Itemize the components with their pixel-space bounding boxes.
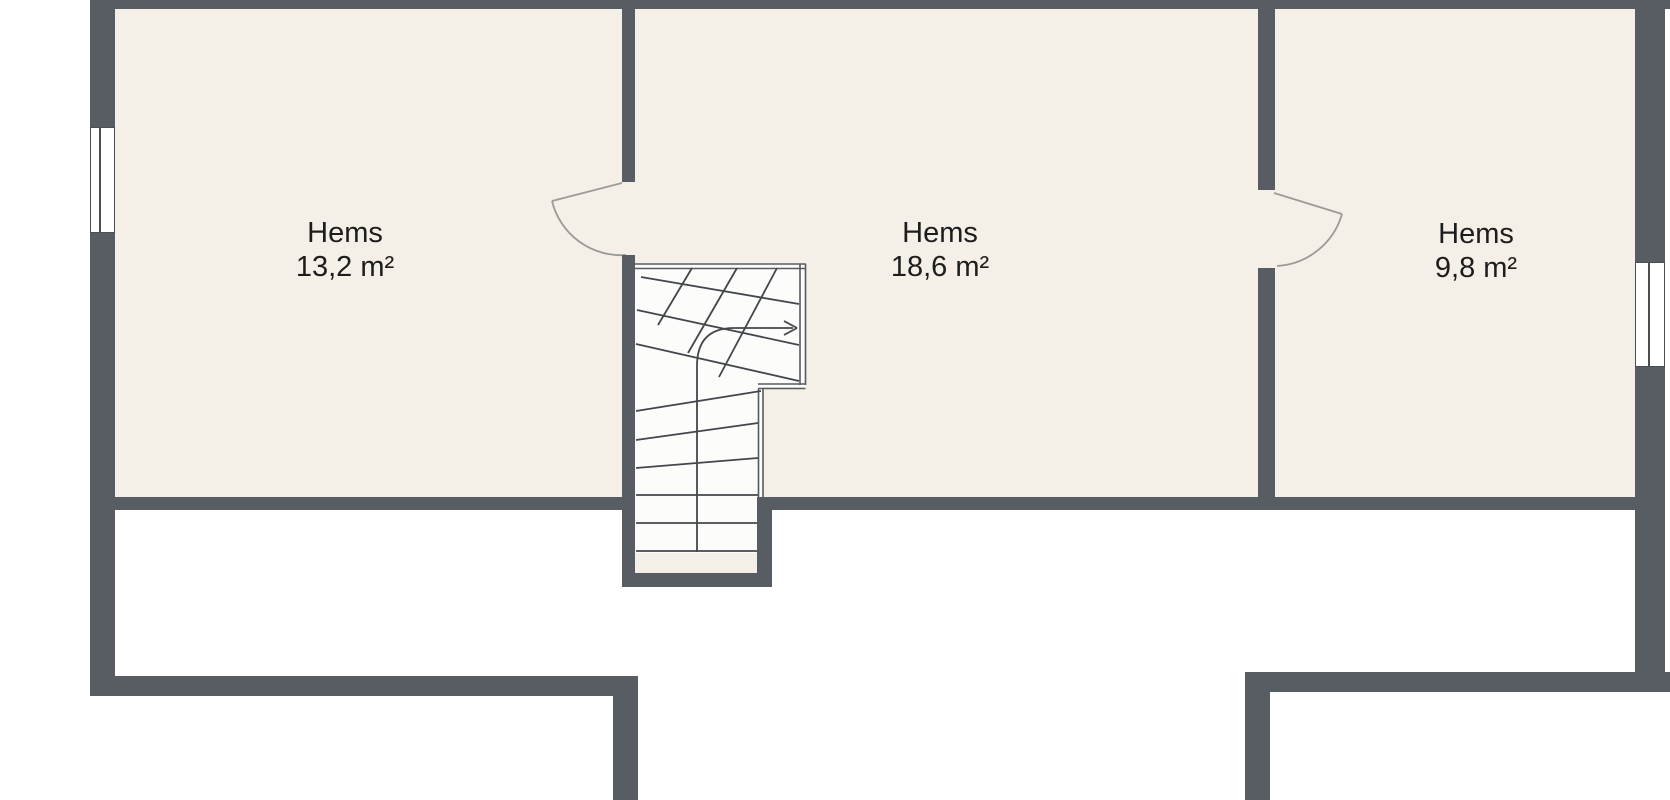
room-2-name: Hems xyxy=(891,216,989,250)
window-right-mullion xyxy=(1648,263,1650,366)
window-right xyxy=(1635,262,1665,367)
wall-rooms-bottom-right xyxy=(757,497,1635,510)
room-2-label: Hems 18,6 m² xyxy=(891,216,989,284)
wall-right-lower xyxy=(1635,367,1665,692)
wall-bottom-left-horizontal xyxy=(90,676,638,696)
wall-bottom-right-vertical xyxy=(1245,672,1270,800)
doorway-2-gap xyxy=(1258,190,1275,268)
wall-interior-2-lower xyxy=(1258,268,1275,510)
floor-plan: Hems 13,2 m² Hems 18,6 m² Hems 9,8 m² xyxy=(0,0,1670,800)
wall-interior-2-upper xyxy=(1258,9,1275,190)
wall-top xyxy=(90,0,1670,9)
room-2-area: 18,6 m² xyxy=(891,250,989,284)
wall-bottom-left-vertical xyxy=(613,696,638,800)
wall-right-upper xyxy=(1635,0,1665,262)
room-1-area: 13,2 m² xyxy=(296,250,394,284)
wall-stair-bottom xyxy=(622,573,772,587)
wall-rooms-bottom-left xyxy=(115,497,622,510)
wall-interior-1-lower xyxy=(622,255,635,587)
doorway-1-gap xyxy=(622,182,635,255)
room-3-label: Hems 9,8 m² xyxy=(1435,217,1517,285)
room-3-area: 9,8 m² xyxy=(1435,251,1517,285)
window-left-mullion xyxy=(99,128,101,232)
window-left xyxy=(90,127,115,233)
room-3-name: Hems xyxy=(1435,217,1517,251)
wall-stair-right xyxy=(757,500,772,587)
stair-landing xyxy=(635,553,757,573)
wall-interior-1-upper xyxy=(622,9,635,182)
wall-left-upper xyxy=(90,0,115,127)
wall-bottom-right-horizontal xyxy=(1245,672,1670,692)
stairwell-lower xyxy=(635,263,763,573)
room-1-name: Hems xyxy=(296,216,394,250)
wall-left-lower xyxy=(90,233,115,676)
room-1-label: Hems 13,2 m² xyxy=(296,216,394,284)
